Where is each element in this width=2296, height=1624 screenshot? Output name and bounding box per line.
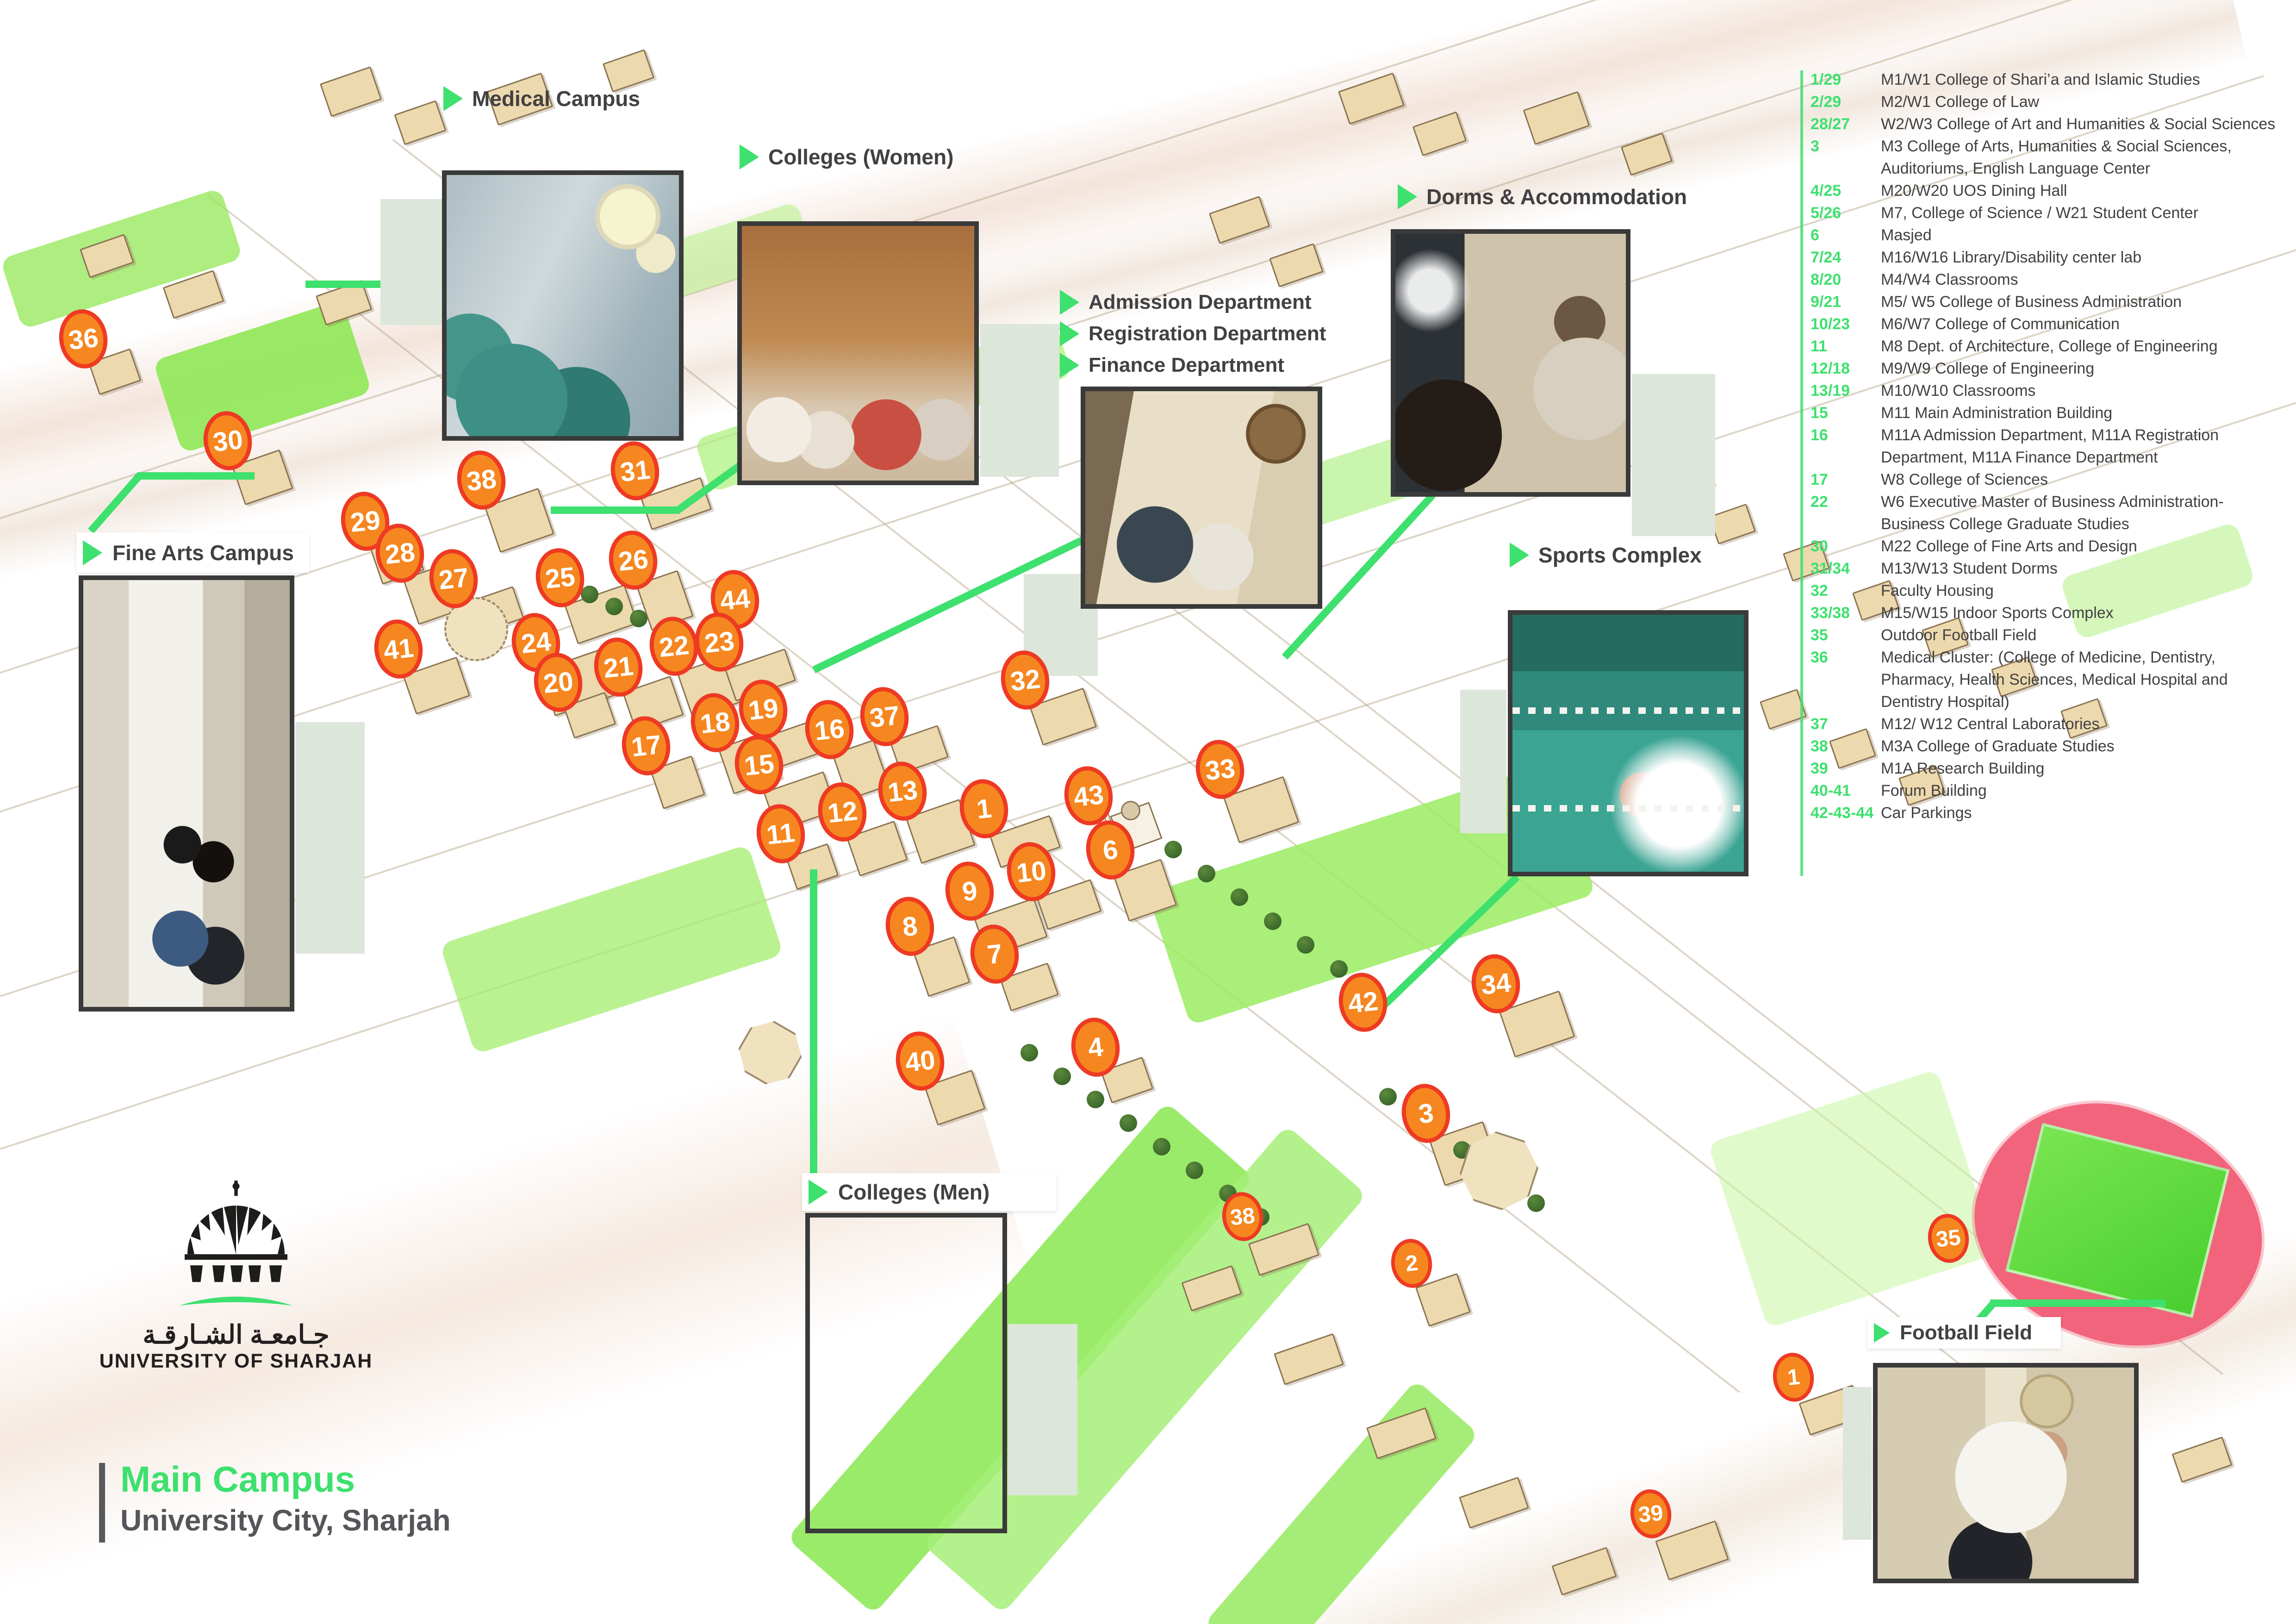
photo-shadow-square [1632, 374, 1715, 536]
tree-icon [605, 598, 623, 615]
football-pitch [2005, 1123, 2229, 1318]
legend-text: M6/W7 College of Communication [1881, 313, 2120, 335]
pool-lane-rope [1512, 707, 1744, 714]
legend-number: 7/24 [1811, 246, 1881, 269]
marker-number: 34 [1479, 967, 1512, 1000]
legend-number: 4/25 [1811, 180, 1881, 202]
legend-number: 38 [1811, 735, 1881, 757]
marker-number: 43 [1072, 779, 1105, 812]
tree-icon [1087, 1091, 1104, 1108]
lawn-patch [440, 844, 784, 1055]
tree-icon [1120, 1114, 1137, 1132]
photo-shadow-square [1843, 1387, 1872, 1540]
legend-item-42-43-44: 42-43-44Car Parkings [1811, 802, 2287, 824]
marker-number: 21 [602, 650, 635, 684]
green-triangle-icon [809, 1180, 828, 1205]
legend-item-11: 11M8 Dept. of Architecture, College of E… [1811, 335, 2287, 357]
tree-icon [1186, 1162, 1203, 1179]
map-building [2172, 1437, 2232, 1483]
legend-number: 42-43-44 [1811, 802, 1881, 824]
marker-number: 40 [903, 1044, 936, 1078]
callout-text: Football Field [1900, 1321, 2032, 1344]
legend-item-4/25: 4/25M20/W20 UOS Dining Hall [1811, 180, 2287, 202]
callout-text: Colleges (Men) [838, 1180, 989, 1205]
legend-text: W6 Executive Master of Business Administ… [1881, 491, 2287, 535]
legend-number: 8/20 [1811, 269, 1881, 291]
map-marker-42[interactable]: 42 [1335, 969, 1391, 1035]
callout-label-admission-department: Admission Department [1060, 290, 1312, 315]
dome-logo-icon [167, 1176, 305, 1319]
marker-number: 9 [960, 875, 978, 907]
marker-number: 1 [975, 793, 993, 825]
marker-number: 3 [1417, 1097, 1435, 1130]
marker-number: 6 [1101, 834, 1119, 866]
callout-text: Medical Campus [472, 86, 640, 111]
marker-number: 33 [1203, 752, 1236, 786]
green-triangle-icon [1398, 184, 1417, 209]
legend-text: M7, College of Science / W21 Student Cen… [1881, 202, 2198, 224]
callout-label-medical-campus: Medical Campus [443, 86, 640, 111]
callout-text: Dorms & Accommodation [1426, 184, 1687, 209]
callout-label-registration-department: Registration Department [1060, 321, 1326, 346]
legend-number: 35 [1811, 624, 1881, 646]
title-divider-bar [99, 1463, 105, 1543]
marker-number: 20 [541, 665, 574, 699]
marker-number: 30 [211, 424, 244, 457]
photo-football-field [1873, 1363, 2139, 1583]
legend-items: 1/29M1/W1 College of Shari’a and Islamic… [1811, 69, 2287, 824]
marker-number: 4 [1086, 1031, 1104, 1063]
legend-number: 12/18 [1811, 357, 1881, 380]
legend-number: 9/21 [1811, 291, 1881, 313]
legend-number: 1/29 [1811, 69, 1881, 91]
legend-text: Faculty Housing [1881, 580, 1994, 602]
legend-text: M9/W9 College of Engineering [1881, 357, 2094, 380]
marker-number: 2 [1404, 1250, 1419, 1276]
legend-text: Medical Cluster: (College of Medicine, D… [1881, 646, 2287, 713]
map-building [1209, 196, 1270, 244]
legend-number: 37 [1811, 713, 1881, 735]
green-triangle-icon [1874, 1323, 1890, 1343]
legend-item-16: 16M11A Admission Department, M11A Regist… [1811, 424, 2287, 468]
callout-text: Registration Department [1089, 322, 1326, 345]
callout-label-colleges-women: Colleges (Women) [740, 144, 953, 169]
legend-item-28/27: 28/27W2/W3 College of Art and Humanities… [1811, 113, 2287, 135]
photo-shadow-square [295, 722, 365, 954]
map-building [1269, 243, 1324, 287]
marker-number: 8 [901, 910, 919, 943]
legend-item-37: 37M12/ W12 Central Laboratories [1811, 713, 2287, 735]
tree-icon [1164, 841, 1182, 858]
legend-text: M2/W1 College of Law [1881, 91, 2039, 113]
photo-dorms [1391, 229, 1630, 497]
callout-label-finance-department: Finance Department [1060, 353, 1284, 378]
pool-lane-rope [1512, 805, 1744, 812]
legend-number: 16 [1811, 424, 1881, 446]
legend-item-22: 22W6 Executive Master of Business Admini… [1811, 491, 2287, 535]
legend-item-1/29: 1/29M1/W1 College of Shari’a and Islamic… [1811, 69, 2287, 91]
legend-number: 10/23 [1811, 313, 1881, 335]
tree-icon [581, 586, 598, 603]
marker-number: 31 [618, 454, 651, 487]
legend-text: M11A Admission Department, M11A Registra… [1881, 424, 2287, 468]
photo-sports-complex [1508, 610, 1748, 876]
tree-icon [1527, 1194, 1545, 1212]
marker-number: 38 [1229, 1203, 1257, 1230]
tree-icon [1330, 960, 1348, 978]
legend-text: M10/W10 Classrooms [1881, 380, 2035, 402]
callout-text: Admission Department [1089, 291, 1312, 314]
marker-number: 29 [348, 504, 381, 538]
marker-number: 41 [382, 632, 415, 666]
photo-shadow-square [1008, 1324, 1077, 1495]
marker-number: 23 [703, 625, 735, 659]
legend-number: 5/26 [1811, 202, 1881, 224]
legend-text: M11 Main Administration Building [1881, 402, 2112, 424]
green-triangle-icon [443, 86, 463, 111]
page-title: Main Campus [120, 1458, 451, 1500]
legend-green-rule [1800, 70, 1803, 876]
legend-text: M15/W15 Indoor Sports Complex [1881, 602, 2114, 624]
marker-number: 19 [747, 692, 779, 726]
legend-text: M12/ W12 Central Laboratories [1881, 713, 2099, 735]
legend-text: Forum Building [1881, 780, 1987, 802]
tree-icon [1020, 1044, 1038, 1062]
lawn-patch [153, 300, 372, 454]
marker-number: 42 [1346, 985, 1379, 1019]
legend-number: 28/27 [1811, 113, 1881, 135]
tree-icon [1264, 912, 1282, 930]
map-building [1459, 1477, 1529, 1529]
map-building [1274, 1333, 1344, 1385]
marker-number: 44 [718, 582, 751, 616]
leader-line [810, 869, 817, 1175]
callout-text: Colleges (Women) [768, 144, 953, 169]
legend-item-40-41: 40-41Forum Building [1811, 780, 2287, 802]
photo-shadow-square [980, 324, 1059, 477]
legend-item-7/24: 7/24M16/W16 Library/Disability center la… [1811, 246, 2287, 269]
map-building [1621, 132, 1673, 176]
tree-icon [1379, 1088, 1397, 1106]
photo-fine-arts [79, 575, 294, 1012]
tree-icon [1153, 1138, 1170, 1156]
campus-map-poster: Medical Campus Colleges (Women) Admissio… [0, 0, 2296, 1624]
marker-number: 36 [67, 322, 100, 356]
callout-text: Finance Department [1089, 354, 1284, 377]
photo-medical-campus [442, 170, 684, 441]
map-building [394, 100, 447, 145]
marker-number: 15 [742, 748, 775, 781]
map-legend: 1/29M1/W1 College of Shari’a and Islamic… [1811, 69, 2287, 824]
marker-number: 7 [985, 938, 1003, 970]
marker-number: 18 [698, 706, 731, 739]
legend-item-10/23: 10/23M6/W7 College of Communication [1811, 313, 2287, 335]
marker-number: 16 [813, 712, 846, 746]
photo-colleges-men [805, 1213, 1007, 1533]
legend-text: M1A Research Building [1881, 757, 2044, 780]
legend-text: Masjed [1881, 224, 1932, 246]
legend-item-15: 15M11 Main Administration Building [1811, 402, 2287, 424]
legend-item-13/19: 13/19M10/W10 Classrooms [1811, 380, 2287, 402]
map-marker-1[interactable]: 1 [1770, 1350, 1817, 1404]
title-block: Main Campus University City, Sharjah [99, 1458, 451, 1537]
green-triangle-icon [1060, 290, 1079, 315]
marker-number: 26 [616, 543, 649, 577]
green-triangle-icon [1060, 321, 1079, 346]
leader-line [551, 506, 680, 514]
logo-english-text: UNIVERSITY OF SHARJAH [69, 1350, 403, 1373]
page-subtitle: University City, Sharjah [120, 1503, 451, 1537]
legend-number: 6 [1811, 224, 1881, 246]
legend-item-12/18: 12/18M9/W9 College of Engineering [1811, 357, 2287, 380]
legend-item-5/26: 5/26M7, College of Science / W21 Student… [1811, 202, 2287, 224]
marker-number: 24 [519, 625, 552, 659]
legend-text: M20/W20 UOS Dining Hall [1881, 180, 2067, 202]
marker-number: 35 [1935, 1224, 1962, 1252]
legend-number: 17 [1811, 468, 1881, 491]
map-building [1709, 504, 1756, 545]
marker-number: 32 [1008, 663, 1041, 697]
marker-number: 13 [886, 774, 919, 808]
legend-item-6: 6Masjed [1811, 224, 2287, 246]
legend-number: 40-41 [1811, 780, 1881, 802]
callout-label-football-field: Football Field [1867, 1317, 2061, 1349]
legend-item-31/34: 31/34M13/W13 Student Dorms [1811, 557, 2287, 580]
callout-text: Fine Arts Campus [112, 540, 294, 565]
photo-shadow-square [380, 199, 445, 325]
legend-item-17: 17W8 College of Sciences [1811, 468, 2287, 491]
legend-number: 3 [1811, 135, 1881, 157]
legend-item-9/21: 9/21M5/ W5 College of Business Administr… [1811, 291, 2287, 313]
university-logo: جـامعـة الشـارقـة UNIVERSITY OF SHARJAH [69, 1176, 403, 1373]
legend-text: M3A College of Graduate Studies [1881, 735, 2115, 757]
leader-line [1990, 1299, 2166, 1307]
legend-text: Car Parkings [1881, 802, 1972, 824]
legend-text: M3 College of Arts, Humanities & Social … [1881, 135, 2287, 180]
legend-number: 32 [1811, 580, 1881, 602]
lawn-patch [1204, 1380, 1479, 1624]
legend-number: 31/34 [1811, 557, 1881, 580]
map-building [1551, 1547, 1617, 1595]
legend-number: 2/29 [1811, 91, 1881, 113]
legend-text: M13/W13 Student Dorms [1881, 557, 2058, 580]
marker-number: 27 [437, 562, 470, 595]
map-building [1760, 689, 1807, 730]
legend-text: W2/W3 College of Art and Humanities & So… [1881, 113, 2275, 135]
marker-number: 38 [465, 463, 498, 497]
legend-item-35: 35Outdoor Football Field [1811, 624, 2287, 646]
leader-line [137, 472, 255, 480]
legend-text: M16/W16 Library/Disability center lab [1881, 246, 2141, 269]
legend-item-32: 32Faculty Housing [1811, 580, 2287, 602]
map-building [1412, 111, 1467, 156]
legend-number: 22 [1811, 491, 1881, 513]
legend-number: 30 [1811, 535, 1881, 557]
lawn-patch [1708, 1069, 1997, 1328]
callout-label-fine-arts: Fine Arts Campus [76, 532, 309, 573]
photo-admission-department [1081, 387, 1322, 609]
legend-item-3: 3M3 College of Arts, Humanities & Social… [1811, 135, 2287, 180]
marker-number: 12 [826, 795, 859, 829]
tree-icon [1198, 865, 1215, 882]
legend-item-8/20: 8/20M4/W4 Classrooms [1811, 269, 2287, 291]
marker-number: 37 [868, 700, 901, 733]
map-building [320, 66, 382, 117]
legend-number: 39 [1811, 757, 1881, 780]
legend-text: W8 College of Sciences [1881, 468, 2048, 491]
legend-text: Outdoor Football Field [1881, 624, 2036, 646]
legend-item-2/29: 2/29M2/W1 College of Law [1811, 91, 2287, 113]
marker-number: 17 [629, 729, 662, 762]
map-marker-39[interactable]: 39 [1627, 1487, 1674, 1541]
leader-line [305, 281, 391, 288]
tree-icon [630, 610, 647, 627]
marker-number: 22 [657, 629, 690, 663]
logo-arabic-text: جـامعـة الشـارقـة [69, 1319, 403, 1350]
legend-number: 33/38 [1811, 602, 1881, 624]
callout-label-dorms: Dorms & Accommodation [1398, 184, 1687, 209]
green-triangle-icon [740, 144, 759, 169]
marker-number: 39 [1637, 1500, 1665, 1528]
green-triangle-icon [83, 540, 102, 565]
callout-label-colleges-men: Colleges (Men) [802, 1173, 1057, 1211]
tree-icon [1053, 1068, 1071, 1085]
callout-text: Sports Complex [1538, 543, 1702, 568]
legend-item-36: 36Medical Cluster: (College of Medicine,… [1811, 646, 2287, 713]
legend-item-38: 38M3A College of Graduate Studies [1811, 735, 2287, 757]
legend-text: M8 Dept. of Architecture, College of Eng… [1881, 335, 2218, 357]
plaza-star [730, 1012, 811, 1093]
marker-number: 28 [383, 536, 416, 570]
marker-number: 25 [543, 561, 576, 594]
legend-number: 11 [1811, 335, 1881, 357]
photo-colleges-women [737, 221, 979, 485]
marker-number: 11 [765, 817, 796, 850]
legend-text: M4/W4 Classrooms [1881, 269, 2018, 291]
legend-number: 15 [1811, 402, 1881, 424]
map-building [1523, 91, 1590, 145]
marker-number: 10 [1014, 855, 1047, 888]
legend-number: 13/19 [1811, 380, 1881, 402]
legend-item-39: 39M1A Research Building [1811, 757, 2287, 780]
marker-number: 1 [1786, 1364, 1801, 1390]
legend-text: M5/ W5 College of Business Administratio… [1881, 291, 2182, 313]
callout-label-sports-complex: Sports Complex [1510, 543, 1702, 568]
legend-text: M22 College of Fine Arts and Design [1881, 535, 2137, 557]
legend-item-30: 30M22 College of Fine Arts and Design [1811, 535, 2287, 557]
legend-text: M1/W1 College of Shari’a and Islamic Stu… [1881, 69, 2200, 91]
green-triangle-icon [1510, 543, 1529, 568]
map-marker-2[interactable]: 2 [1388, 1236, 1435, 1290]
green-triangle-icon [1060, 353, 1079, 378]
legend-item-33/38: 33/38M15/W15 Indoor Sports Complex [1811, 602, 2287, 624]
photo-shadow-square [1460, 690, 1506, 833]
legend-number: 36 [1811, 646, 1881, 668]
